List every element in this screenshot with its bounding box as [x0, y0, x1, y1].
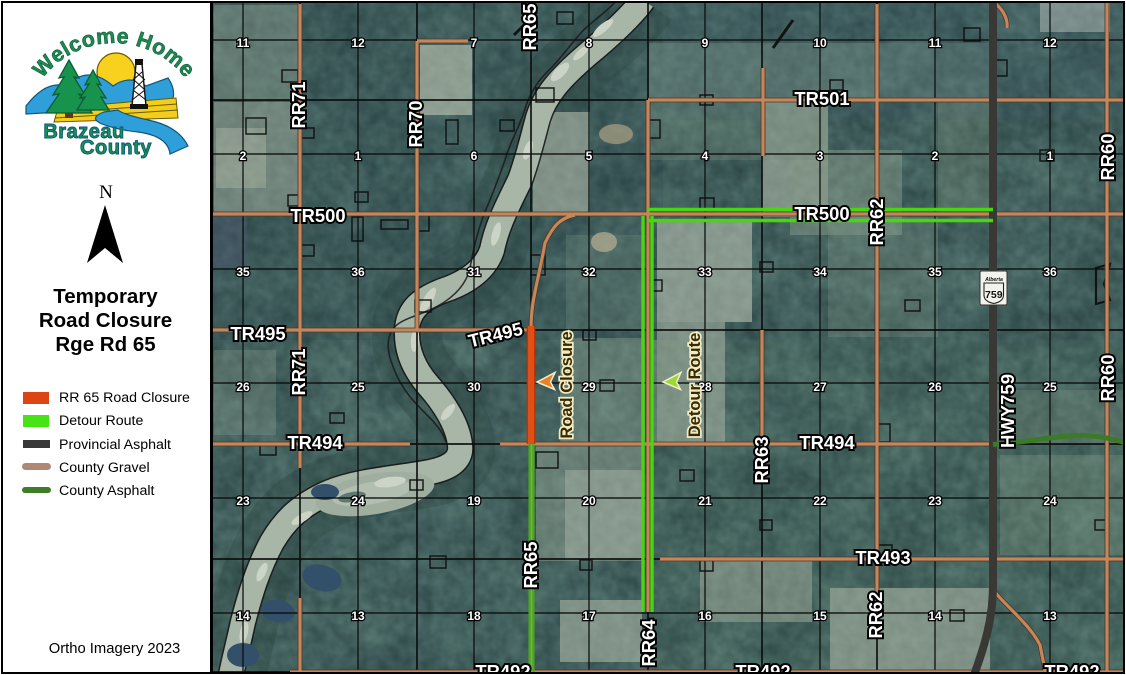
svg-text:Alberta: Alberta	[984, 277, 1003, 283]
svg-text:RR70: RR70	[405, 100, 426, 147]
svg-text:32: 32	[582, 265, 596, 279]
svg-text:TR500: TR500	[794, 203, 849, 224]
svg-text:TR495: TR495	[230, 323, 285, 344]
svg-text:15: 15	[813, 609, 827, 623]
svg-text:11: 11	[237, 36, 250, 50]
svg-text:31: 31	[467, 265, 481, 279]
svg-text:24: 24	[1043, 494, 1057, 508]
svg-text:RR71: RR71	[288, 348, 309, 395]
svg-text:TR492: TR492	[475, 661, 530, 675]
svg-text:1: 1	[355, 149, 362, 163]
svg-text:7: 7	[471, 36, 478, 50]
svg-text:4: 4	[702, 149, 709, 163]
svg-text:26: 26	[236, 380, 250, 394]
svg-text:16: 16	[698, 609, 712, 623]
svg-text:1: 1	[1047, 149, 1054, 163]
svg-text:3: 3	[817, 149, 824, 163]
svg-text:N: N	[99, 182, 113, 203]
svg-text:11: 11	[929, 36, 942, 50]
svg-text:TR494: TR494	[287, 432, 343, 453]
svg-text:36: 36	[351, 265, 365, 279]
svg-text:23: 23	[236, 494, 250, 508]
svg-text:RR71: RR71	[288, 81, 309, 128]
svg-text:21: 21	[698, 494, 712, 508]
svg-text:TR494: TR494	[799, 432, 855, 453]
svg-text:RR63: RR63	[751, 436, 772, 483]
svg-text:26: 26	[928, 380, 942, 394]
svg-text:RR64: RR64	[638, 619, 659, 667]
svg-text:9: 9	[702, 36, 709, 50]
svg-text:25: 25	[351, 380, 365, 394]
svg-text:25: 25	[1043, 380, 1057, 394]
svg-text:759: 759	[985, 289, 1003, 301]
svg-text:34: 34	[813, 265, 827, 279]
svg-text:2: 2	[932, 149, 939, 163]
svg-text:5: 5	[586, 149, 593, 163]
svg-text:35: 35	[928, 265, 942, 279]
svg-text:10: 10	[813, 36, 827, 50]
svg-text:27: 27	[813, 380, 827, 394]
svg-text:2: 2	[240, 149, 247, 163]
svg-text:24: 24	[351, 494, 365, 508]
svg-text:12: 12	[351, 36, 365, 50]
svg-text:13: 13	[351, 609, 365, 623]
svg-text:TR492: TR492	[735, 661, 790, 675]
svg-text:36: 36	[1043, 265, 1057, 279]
svg-text:30: 30	[467, 380, 481, 394]
svg-text:19: 19	[467, 494, 481, 508]
svg-text:TR493: TR493	[855, 547, 910, 568]
svg-text:TR501: TR501	[794, 88, 849, 109]
svg-text:RR62: RR62	[866, 198, 887, 245]
svg-text:23: 23	[928, 494, 942, 508]
svg-text:RR65: RR65	[520, 541, 541, 588]
svg-text:RR60: RR60	[1097, 133, 1118, 180]
svg-text:14: 14	[236, 609, 250, 623]
svg-text:HWY759: HWY759	[997, 374, 1018, 448]
svg-text:6: 6	[471, 149, 478, 163]
svg-text:33: 33	[698, 265, 712, 279]
svg-text:22: 22	[813, 494, 827, 508]
svg-text:County: County	[80, 137, 152, 159]
svg-text:18: 18	[467, 609, 481, 623]
svg-text:Road Closure: Road Closure	[558, 331, 576, 438]
svg-text:20: 20	[582, 494, 596, 508]
svg-text:13: 13	[1043, 609, 1057, 623]
svg-text:17: 17	[582, 609, 596, 623]
svg-text:35: 35	[236, 265, 250, 279]
svg-text:Detour Route: Detour Route	[686, 333, 704, 438]
svg-text:12: 12	[1043, 36, 1057, 50]
svg-text:TR500: TR500	[290, 205, 345, 226]
svg-text:29: 29	[582, 380, 596, 394]
svg-text:8: 8	[586, 36, 593, 50]
svg-text:14: 14	[928, 609, 942, 623]
svg-text:TR492: TR492	[1044, 661, 1099, 675]
svg-text:RR60: RR60	[1097, 354, 1118, 401]
svg-text:RR65: RR65	[519, 3, 540, 50]
svg-text:RR62: RR62	[865, 591, 886, 638]
